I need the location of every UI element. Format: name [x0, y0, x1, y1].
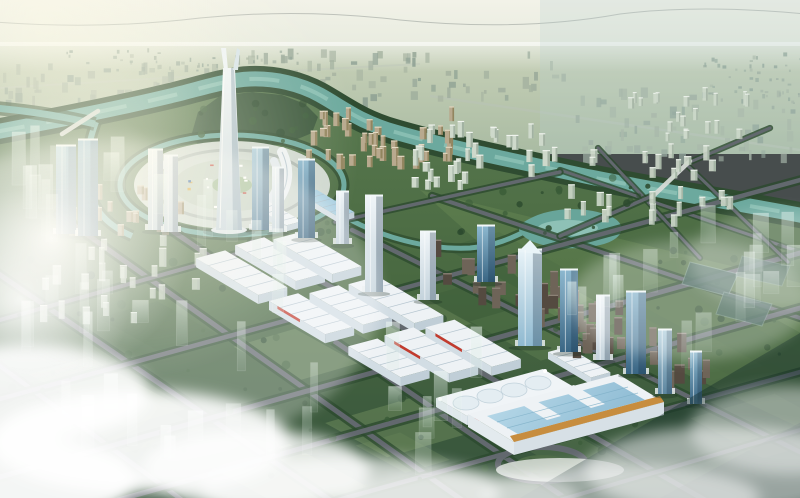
- riverfront-residential-roof: [543, 150, 550, 151]
- east-residential-shade: [610, 206, 612, 216]
- riverside-residential-shade: [384, 146, 386, 161]
- riverfront-residential-roof: [425, 180, 431, 181]
- distant-building: [528, 51, 531, 58]
- riverside-residential-roof: [438, 125, 443, 126]
- distant-building: [484, 71, 489, 79]
- riverfront-residential-roof: [456, 158, 461, 159]
- east-residential-roof: [684, 156, 691, 157]
- planned-ghost-tower: [452, 388, 461, 427]
- distant-building: [438, 96, 443, 102]
- distant-building: [351, 61, 357, 64]
- riverfront-residential-shade: [422, 146, 424, 161]
- riverfront-residential-roof: [465, 148, 470, 149]
- riverfront-residential-shade: [457, 161, 459, 174]
- office-tower-shade: [533, 250, 542, 346]
- tree-clump: [623, 199, 631, 207]
- distant-building: [373, 53, 378, 65]
- riverside-residential-shade: [371, 156, 373, 167]
- riverfront-residential-roof: [462, 172, 468, 173]
- riverside-residential-shade: [366, 133, 368, 143]
- tree-clump: [629, 186, 632, 189]
- riverfront-residential-roof: [466, 132, 473, 133]
- riverfront-residential-shade: [417, 149, 419, 165]
- riverfront-residential-shade: [516, 135, 518, 150]
- office-tower-cap: [477, 225, 495, 227]
- north-bank-towers-shade: [641, 97, 642, 106]
- riverfront-residential-roof: [512, 135, 519, 136]
- distant-building: [449, 82, 456, 88]
- north-bank-towers-roof: [667, 121, 672, 122]
- office-tower-shade: [430, 232, 436, 300]
- riverfront-residential-shade: [497, 129, 499, 142]
- distant-building: [529, 85, 533, 92]
- residential-slab-roof: [478, 287, 486, 288]
- east-residential-shade: [573, 184, 575, 199]
- distant-building: [412, 58, 415, 67]
- riverfront-residential-roof: [454, 161, 459, 162]
- distant-building: [378, 93, 382, 97]
- riverfront-residential-roof: [413, 149, 418, 150]
- tower-shadow: [508, 346, 551, 351]
- riverside-residential-roof: [420, 127, 427, 128]
- riverside-residential-shade: [372, 133, 374, 145]
- riverside-residential-roof: [392, 147, 398, 148]
- tower-shadow: [652, 394, 677, 399]
- east-residential-roof: [650, 167, 656, 168]
- distant-building: [466, 86, 470, 93]
- east-residential-roof: [649, 209, 655, 210]
- riverfront-residential-roof: [423, 162, 430, 163]
- east-residential-roof: [581, 201, 586, 202]
- north-bank-towers-shade: [671, 121, 673, 131]
- riverfront-residential-shade: [429, 180, 431, 190]
- riverfront-residential-roof: [526, 150, 532, 151]
- riverfront-residential-shade: [510, 135, 512, 148]
- tree-clump: [503, 211, 508, 216]
- east-residential-shade: [654, 167, 656, 178]
- riverfront-residential-shade: [530, 150, 532, 162]
- distant-building: [377, 51, 383, 58]
- east-residential-roof: [668, 143, 673, 144]
- north-bank-towers-shade: [740, 129, 742, 139]
- north-bank-towers-roof: [745, 94, 749, 95]
- north-bank-towers-roof: [684, 130, 690, 131]
- residential-slab: [508, 255, 516, 274]
- east-residential-roof: [568, 184, 575, 185]
- residential-slab: [478, 287, 486, 306]
- east-residential-roof: [671, 214, 677, 215]
- east-residential-shade: [584, 201, 586, 216]
- east-residential-shade: [569, 209, 571, 220]
- screenshot-root: Riverside city master plan — aerial rend…: [0, 0, 800, 498]
- tree-clump: [645, 184, 650, 189]
- tower-shadow: [553, 352, 585, 357]
- office-tower-cap: [560, 269, 578, 271]
- riverfront-residential-roof: [427, 129, 433, 130]
- north-bank-towers-roof: [633, 92, 637, 93]
- riverside-residential-roof: [362, 133, 367, 134]
- east-residential-shade: [593, 157, 595, 166]
- distant-building: [454, 70, 457, 79]
- north-bank-towers-shade: [748, 94, 750, 107]
- residential-slab-roof: [462, 258, 472, 259]
- roof-lobe: [477, 389, 503, 403]
- riverside-residential-roof: [443, 153, 448, 154]
- north-bank-towers-roof: [703, 87, 708, 88]
- riverfront-residential-shade: [466, 172, 468, 184]
- office-tower-cap: [420, 231, 436, 233]
- distant-building: [411, 91, 418, 100]
- tree-clump: [553, 326, 559, 332]
- riverfront-residential-roof: [412, 177, 419, 178]
- distant-building: [406, 58, 411, 64]
- riverfront-residential-shade: [453, 125, 455, 138]
- north-bank-towers-shade: [706, 87, 708, 101]
- east-residential-roof: [703, 145, 709, 146]
- riverside-residential-shade: [380, 148, 382, 159]
- north-bank-towers-shade: [687, 96, 689, 107]
- east-residential-roof: [719, 190, 725, 191]
- north-bank-towers-roof: [705, 121, 711, 122]
- east-residential-roof: [590, 149, 597, 150]
- riverfront-residential-shade: [532, 123, 534, 138]
- riverfront-residential-shade: [556, 147, 558, 162]
- east-residential-roof: [655, 154, 661, 155]
- north-bank-towers-shade: [716, 93, 717, 106]
- east-residential-shade: [707, 145, 709, 160]
- distant-building: [534, 72, 538, 81]
- riverfront-residential-shade: [543, 133, 545, 146]
- north-bank-towers-roof: [693, 108, 698, 109]
- residential-slab: [703, 360, 710, 379]
- east-residential-shade: [681, 186, 683, 199]
- riverside-residential-shade: [402, 156, 404, 170]
- east-residential-roof: [607, 206, 612, 207]
- east-residential-shade: [601, 192, 603, 206]
- north-bank-towers-roof: [743, 91, 747, 92]
- aerial-masterplan-rendering: Riverside city master plan — aerial rend…: [0, 0, 800, 498]
- riverside-residential-shade: [379, 127, 381, 135]
- east-residential-shade: [731, 196, 733, 209]
- east-residential-shade: [653, 209, 655, 224]
- corner-dome: [543, 369, 547, 373]
- north-bank-towers-shade: [687, 130, 689, 139]
- riverfront-residential-shade: [438, 177, 440, 188]
- riverfront-residential-shade: [481, 155, 483, 169]
- residential-slab: [462, 258, 472, 274]
- east-residential-roof: [699, 197, 705, 198]
- tower-shadow: [414, 300, 443, 305]
- residential-slab: [492, 288, 500, 309]
- north-bank-towers-roof: [684, 96, 690, 97]
- riverfront-residential-shade: [431, 129, 433, 143]
- roof-lobe: [501, 383, 527, 397]
- riverside-residential-roof: [368, 133, 373, 134]
- planned-ghost-tower: [423, 396, 431, 427]
- tree-clump: [541, 191, 544, 194]
- east-residential-roof: [606, 194, 611, 195]
- riverfront-residential-roof: [528, 164, 534, 165]
- tree-clump: [543, 231, 547, 235]
- east-residential-shade: [653, 191, 655, 204]
- riverfront-residential-shade: [432, 169, 434, 182]
- north-bank-towers-roof: [714, 93, 718, 94]
- distant-building: [447, 87, 450, 98]
- office-tower-cap: [365, 195, 383, 197]
- riverfront-residential-shade: [428, 162, 431, 172]
- riverfront-residential-shade: [459, 160, 461, 172]
- residential-slab: [548, 295, 558, 309]
- riverside-residential-shade: [427, 151, 429, 161]
- east-residential-shade: [714, 160, 716, 172]
- east-residential-shade: [703, 197, 705, 207]
- riverfront-residential-roof: [528, 123, 533, 124]
- east-residential-shade: [659, 154, 661, 169]
- north-bank-towers-shade: [696, 108, 698, 120]
- distant-building: [446, 71, 451, 76]
- riverside-residential-roof: [373, 132, 378, 133]
- riverfront-residential-roof: [552, 147, 557, 148]
- north-bank-towers-roof: [736, 129, 742, 130]
- east-residential-roof: [597, 192, 604, 193]
- riverside-residential-roof: [449, 106, 454, 107]
- distant-building: [413, 79, 418, 87]
- distant-building: [484, 90, 487, 94]
- residential-slab-roof: [550, 271, 558, 272]
- distant-building: [412, 52, 416, 57]
- distant-building: [463, 84, 466, 87]
- riverside-residential-shade: [441, 125, 443, 134]
- riverfront-residential-roof: [476, 155, 483, 156]
- tree-clump: [287, 425, 293, 431]
- tree-clump: [592, 226, 595, 229]
- riverside-residential-shade: [450, 147, 452, 162]
- north-bank-towers-shade: [668, 133, 669, 142]
- riverside-residential-shade: [446, 153, 448, 162]
- distant-building: [380, 76, 386, 82]
- tower-shadow: [618, 374, 654, 379]
- north-bank-towers-shade: [635, 92, 636, 103]
- riverside-residential-shade: [452, 106, 454, 121]
- riverfront-residential-shade: [462, 121, 464, 138]
- planned-ghost-tower: [434, 371, 447, 421]
- residential-slab: [443, 273, 452, 285]
- residential-slab-roof: [492, 288, 500, 289]
- riverfront-residential-roof: [419, 146, 424, 147]
- riverside-residential-roof: [381, 135, 386, 136]
- east-residential-shade: [689, 156, 691, 165]
- residential-slab-roof: [703, 360, 710, 361]
- riverfront-residential-shade: [416, 177, 418, 188]
- residential-slab-roof: [548, 295, 558, 296]
- north-bank-towers-shade: [658, 92, 659, 102]
- east-residential-roof: [677, 202, 682, 203]
- tree-clump: [546, 225, 552, 231]
- north-bank-towers-roof: [680, 116, 686, 117]
- north-bank-towers-shade: [709, 121, 711, 133]
- distant-building: [425, 53, 429, 63]
- riverfront-residential-shade: [495, 127, 497, 138]
- riverside-residential-roof: [391, 140, 397, 141]
- riverfront-residential-shade: [468, 148, 470, 161]
- tree-clump: [578, 441, 582, 445]
- north-bank-towers-roof: [666, 133, 670, 134]
- riverside-residential-roof: [372, 145, 377, 146]
- tower-shadow: [470, 282, 502, 287]
- residential-slab-roof: [508, 255, 516, 256]
- tree-clump: [465, 199, 473, 207]
- distant-building: [369, 81, 376, 88]
- tree-clump: [385, 417, 390, 422]
- riverside-residential-roof: [375, 127, 382, 128]
- riverside-residential-roof: [419, 144, 425, 145]
- east-residential-roof: [642, 151, 647, 152]
- east-residential-roof: [676, 159, 681, 160]
- distant-building: [357, 70, 363, 81]
- riverfront-residential-roof: [539, 133, 545, 134]
- tree-clump: [636, 193, 641, 198]
- riverside-residential-roof: [367, 156, 373, 157]
- tree-clump: [499, 188, 506, 195]
- north-bank-towers-roof: [639, 97, 643, 98]
- riverside-residential-roof: [397, 156, 404, 157]
- east-residential-shade: [679, 159, 681, 172]
- distant-building: [481, 92, 484, 102]
- east-residential-roof: [564, 209, 571, 210]
- east-residential-roof: [721, 197, 728, 198]
- north-bank-towers-shade: [632, 97, 634, 108]
- office-tower-shade: [488, 226, 495, 282]
- east-residential-roof: [709, 160, 716, 161]
- east-residential-shade: [695, 170, 697, 181]
- distant-building: [370, 94, 377, 101]
- riverfront-residential-roof: [472, 143, 478, 144]
- north-bank-towers-roof: [714, 120, 719, 121]
- residential-slab: [550, 271, 558, 292]
- distant-building: [418, 78, 421, 81]
- riverside-residential-shade: [371, 119, 373, 130]
- riverfront-residential-roof: [458, 121, 465, 122]
- riverfront-residential-shade: [533, 164, 535, 177]
- roof-lobe: [525, 376, 551, 390]
- distant-building: [352, 85, 356, 91]
- east-residential-shade: [726, 197, 729, 206]
- distant-building: [368, 61, 373, 70]
- distant-building: [505, 95, 509, 101]
- east-residential-roof: [590, 157, 596, 158]
- planned-ghost-tower: [386, 322, 399, 370]
- east-residential-shade: [680, 202, 682, 217]
- north-bank-towers-shade: [684, 116, 686, 127]
- residential-slab-roof: [443, 273, 452, 274]
- riverside-residential-roof: [376, 148, 382, 149]
- riverside-residential-roof: [446, 147, 452, 148]
- distant-building: [523, 77, 529, 89]
- riverside-residential-roof: [367, 119, 373, 120]
- east-residential-shade: [646, 151, 648, 163]
- riverfront-residential-shade: [433, 124, 435, 134]
- north-bank-towers-roof: [684, 129, 689, 130]
- tree-clump: [516, 201, 522, 207]
- riverside-residential-shade: [424, 127, 426, 139]
- tree-clump: [457, 229, 463, 235]
- east-residential-roof: [649, 191, 655, 192]
- riverfront-residential-shade: [547, 150, 550, 166]
- tree-clump: [609, 174, 617, 182]
- distant-building: [431, 85, 435, 92]
- planned-ghost-tower: [471, 327, 482, 378]
- east-residential-roof: [678, 186, 683, 187]
- north-bank-towers-shade: [718, 120, 720, 134]
- north-bank-towers-roof: [676, 112, 680, 113]
- planned-ghost-tower: [389, 386, 402, 410]
- tree-clump: [556, 189, 562, 195]
- east-residential-shade: [672, 143, 674, 158]
- riverside-residential-roof: [380, 146, 387, 147]
- tower-shadow: [590, 360, 615, 365]
- riverfront-residential-shade: [471, 132, 473, 148]
- distant-building: [404, 67, 408, 73]
- riverfront-residential-roof: [428, 124, 435, 125]
- riverfront-residential-roof: [434, 177, 440, 178]
- distant-building: [498, 88, 505, 93]
- north-bank-towers-roof: [656, 92, 660, 93]
- riverfront-residential-roof: [491, 127, 497, 128]
- riverfront-residential-roof: [450, 125, 455, 126]
- north-bank-towers-roof: [628, 97, 634, 98]
- riverside-residential-roof: [424, 151, 429, 152]
- east-residential-roof: [691, 170, 698, 171]
- riverfront-residential-roof: [506, 135, 512, 136]
